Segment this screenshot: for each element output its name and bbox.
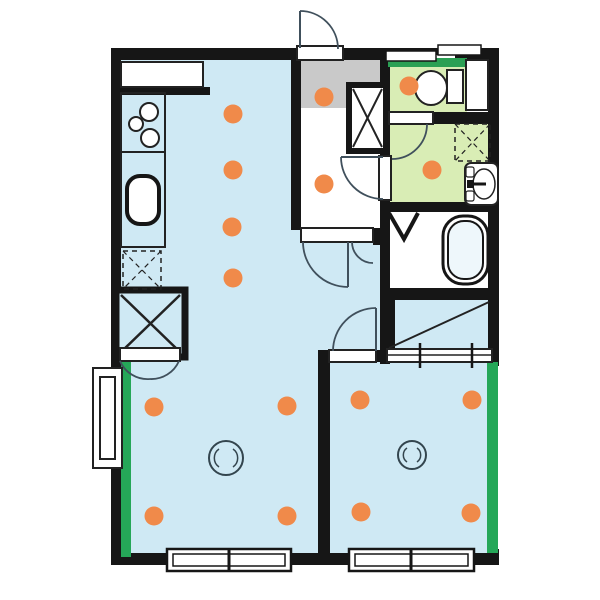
washroom-door-sill [379,156,391,200]
marker-dot [145,398,164,417]
entrance-door-arc [300,11,338,49]
closet-floor [385,298,492,349]
marker-dot [145,507,164,526]
toilet-side-niche [466,60,488,110]
wall-bedroom-living [318,350,330,565]
washbasin-tray-upper [466,167,474,177]
stove-burner-3 [141,129,159,147]
wall-bathroom-closet [383,288,492,300]
window-top-pane-right [438,45,481,55]
living-floor-extension-lower [301,353,320,559]
wall-top-left [111,48,301,60]
toilet-bowl [415,71,447,105]
washbasin-tray-lower [466,191,474,201]
washbasin-faucet-knob [467,180,474,188]
living-floor-extension-upper [301,240,385,353]
bedroom-floor [330,353,488,559]
marker-dot [278,397,297,416]
marker-dot [400,77,419,96]
marker-dot [224,161,243,180]
bathtub-inner [448,221,483,279]
floorplan-page [0,0,600,600]
marker-dot [223,218,242,237]
marker-dot [351,391,370,410]
window-top-pane-left [386,51,436,61]
kitchen-sink [127,176,159,224]
marker-dot [352,503,371,522]
marker-dot [423,161,442,180]
marker-dot [462,504,481,523]
closet-door-sill [120,348,180,361]
kitchen-counter-top [121,62,203,87]
stove-burner-1 [140,103,158,121]
bedroom-door-sill [329,350,376,362]
marker-dot [463,391,482,410]
marker-dot [224,105,243,124]
wall-hall-left [291,48,301,230]
stove-burner-2 [129,117,143,131]
marker-dot [278,507,297,526]
wall-toilet-bottom [429,112,492,124]
plan-shapes-layer [93,11,499,571]
entrance-door-sill [297,46,343,60]
marker-dot [315,88,334,107]
toilet-tank [447,70,463,103]
hall-living-door-sill [301,228,373,242]
floorplan-svg [0,0,600,600]
marker-dot [224,269,243,288]
left-bay-inner-frame [100,377,115,459]
toilet-door-sill [389,112,433,124]
wall-sill-stub [373,228,390,245]
window-right-strip [487,362,498,553]
marker-dot [315,175,334,194]
